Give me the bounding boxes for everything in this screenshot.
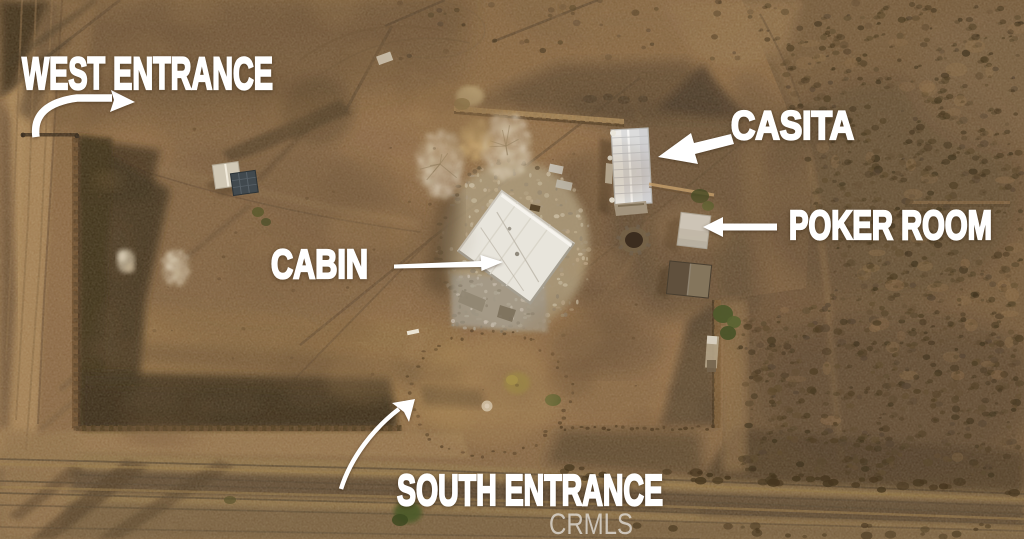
svg-text:POKER ROOM: POKER ROOM (789, 202, 992, 248)
svg-text:CRMLS: CRMLS (549, 508, 633, 539)
svg-text:WEST ENTRANCE: WEST ENTRANCE (22, 48, 273, 99)
svg-text:CABIN: CABIN (271, 241, 368, 287)
svg-text:CASITA: CASITA (731, 104, 854, 148)
